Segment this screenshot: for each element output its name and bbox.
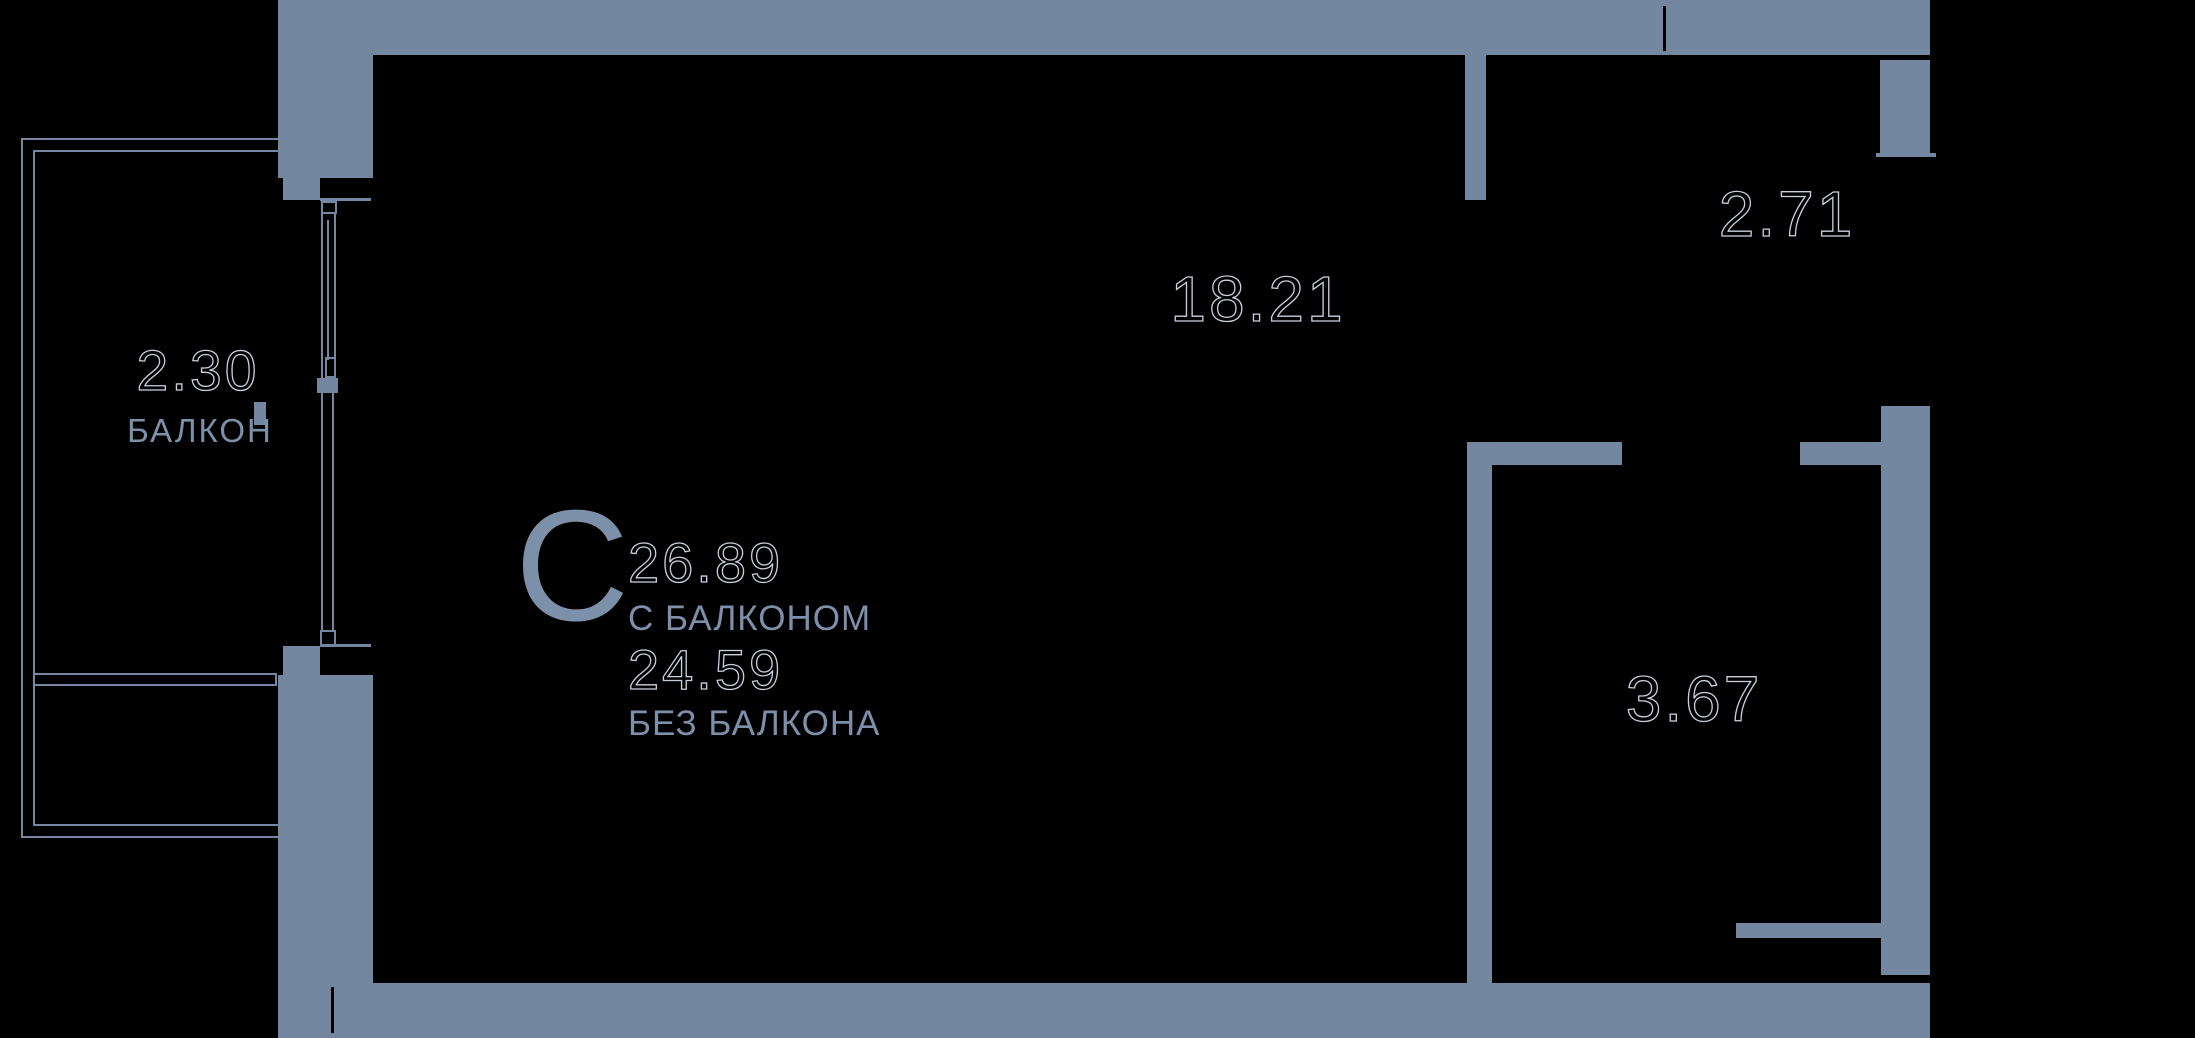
window-frame-right <box>334 213 336 380</box>
window-foot-box <box>325 357 336 378</box>
wall-bathroom-left <box>1467 442 1492 983</box>
window-frame-left <box>321 213 323 380</box>
wall-column-bottom-left <box>278 675 373 983</box>
area-without-balcony-label: БЕЗ БАЛКОНА <box>628 706 881 741</box>
door-sill-line <box>320 644 371 647</box>
door-frame-right <box>332 393 334 632</box>
niche-area: 2.71 <box>1697 182 1877 246</box>
wall-top-joint-right <box>1663 6 1666 51</box>
window-sill-niche <box>1876 153 1936 157</box>
wall-niche-right <box>1880 60 1930 153</box>
balcony-inner-line <box>33 150 283 826</box>
area-with-balcony-value: 26.89 <box>628 535 783 591</box>
area-without-balcony-value: 24.59 <box>628 642 783 698</box>
wall-bathroom-top-right <box>1800 442 1881 465</box>
wall-top <box>369 0 1930 55</box>
wall-column-top-left-stub <box>283 178 320 200</box>
wall-niche-left <box>1465 55 1486 200</box>
wall-column-top-left <box>278 0 373 178</box>
balcony-divider <box>33 673 277 686</box>
door-frame-left <box>321 393 323 632</box>
unit-type-letter: С <box>515 487 629 645</box>
wall-outer-right <box>1881 406 1930 975</box>
wall-bottom-joint <box>331 987 334 1033</box>
window-door-post <box>317 378 338 393</box>
balcony-label: БАЛКОН <box>110 414 290 447</box>
balcony-area: 2.30 <box>118 343 278 400</box>
wall-bottom <box>278 983 1930 1038</box>
floor-plan: 2.30 БАЛКОН С 26.89 С БАЛКОНОМ 24.59 БЕЗ… <box>0 0 2195 1038</box>
area-with-balcony-label: С БАЛКОНОМ <box>628 601 871 636</box>
window-glazing-line <box>327 220 329 360</box>
wall-column-bottom-left-stub <box>283 646 320 675</box>
wall-shaft <box>1736 923 1883 938</box>
bathroom-area: 3.67 <box>1604 667 1784 731</box>
main-room-area: 18.21 <box>1158 267 1358 331</box>
